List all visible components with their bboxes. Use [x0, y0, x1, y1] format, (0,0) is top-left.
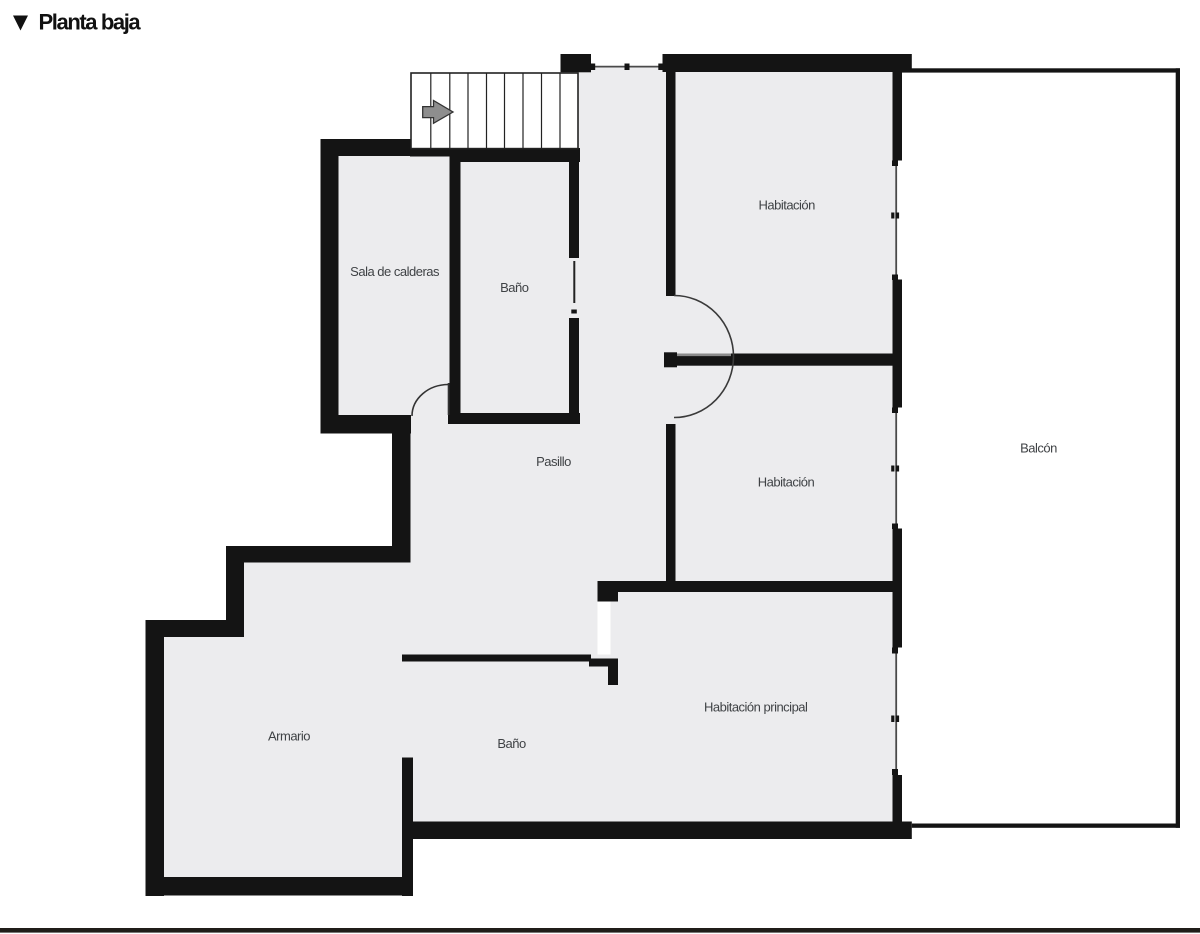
svg-text:Sala de calderas: Sala de calderas — [350, 264, 440, 279]
svg-text:Habitación principal: Habitación principal — [704, 700, 808, 715]
svg-text:Habitación: Habitación — [758, 198, 815, 213]
svg-text:Habitación: Habitación — [758, 475, 815, 490]
svg-text:Baño: Baño — [500, 280, 529, 295]
svg-text:Balcón: Balcón — [1020, 441, 1057, 456]
svg-text:Armario: Armario — [268, 729, 310, 744]
svg-text:Baño: Baño — [497, 736, 526, 751]
svg-text:Pasillo: Pasillo — [536, 454, 571, 469]
svg-text:Planta baja: Planta baja — [39, 10, 142, 35]
